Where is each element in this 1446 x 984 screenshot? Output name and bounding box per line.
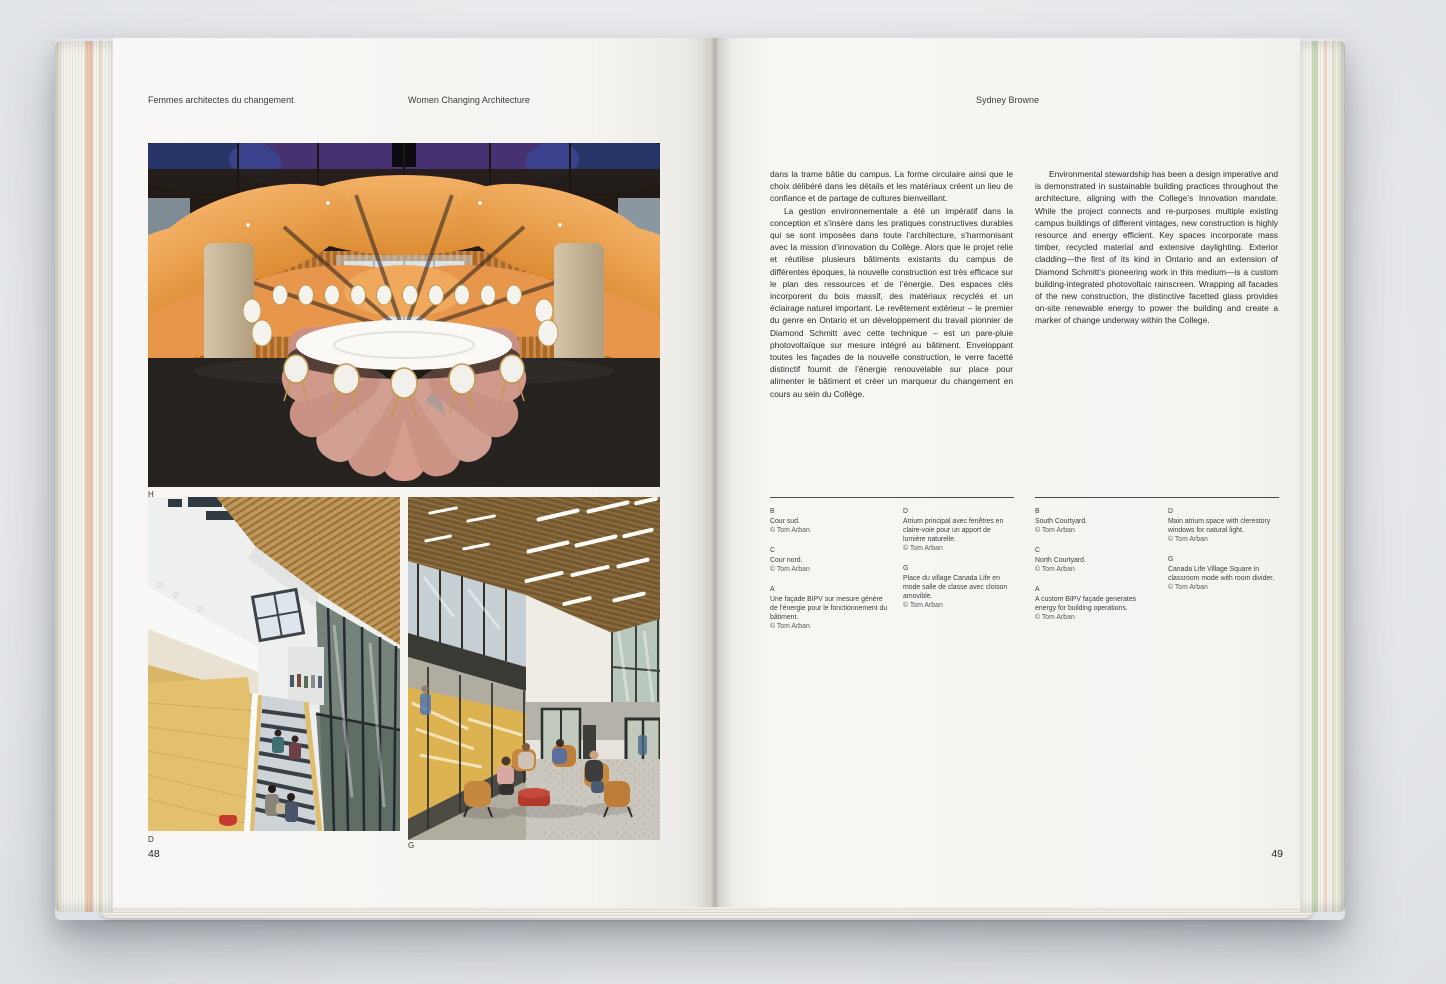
- page-edges-left: [55, 41, 113, 912]
- captions-english: B South Courtyard. © Tom Arban C North C…: [1035, 497, 1279, 633]
- paragraph-fr-2: La gestion environnementale a été un imp…: [770, 205, 1013, 400]
- photo-h-illustration: [148, 143, 660, 487]
- left-page: Femmes architectes du changement Women C…: [113, 38, 715, 907]
- page-edges-right: [1300, 41, 1345, 912]
- caption-en-d: D Main atrium space with clerestory wind…: [1168, 507, 1279, 544]
- paragraph-fr-1: dans la trame bâtie du campus. La forme …: [770, 168, 1013, 205]
- running-head-author: Sydney Browne: [715, 95, 1300, 105]
- page-number-right: 49: [1271, 848, 1283, 860]
- running-head-english: Women Changing Architecture: [408, 95, 530, 105]
- caption-fr-a: A Une façade BIPV sur mesure génère de l…: [770, 585, 903, 631]
- photo-h-roundtable-room: [148, 143, 660, 487]
- caption-en-c: C North Courtyard. © Tom Arban: [1035, 546, 1168, 574]
- caption-en-a: A A custom BIPV façade generates energy …: [1035, 585, 1168, 622]
- page-number-left: 48: [148, 848, 160, 860]
- photo-d-stairwell: [148, 497, 400, 831]
- captions-french-col1: B Cour sud. © Tom Arban C Cour nord. © T…: [770, 507, 903, 642]
- body-column-french: dans la trame bâtie du campus. La forme …: [770, 168, 1013, 400]
- photo-g-atrium-lounge: [408, 497, 660, 840]
- body-column-english: Environmental stewardship has been a des…: [1035, 168, 1278, 327]
- caption-fr-c: C Cour nord. © Tom Arban: [770, 546, 903, 574]
- open-book: Femmes architectes du changement Women C…: [55, 38, 1345, 920]
- captions-english-col1: B South Courtyard. © Tom Arban C North C…: [1035, 507, 1168, 633]
- photo-g-illustration: [408, 497, 660, 840]
- caption-en-b: B South Courtyard. © Tom Arban: [1035, 507, 1168, 535]
- captions-french: B Cour sud. © Tom Arban C Cour nord. © T…: [770, 497, 1014, 642]
- photo-d-illustration: [148, 497, 400, 831]
- caption-fr-b: B Cour sud. © Tom Arban: [770, 507, 903, 535]
- caption-en-g: G Canada Life Village Square in classroo…: [1168, 555, 1279, 592]
- caption-fr-d: D Atrium principal avec fenêtres en clai…: [903, 507, 1014, 553]
- right-page: Sydney Browne dans la trame bâtie du cam…: [715, 38, 1300, 907]
- book-spread-photograph: Femmes architectes du changement Women C…: [0, 0, 1446, 984]
- caption-fr-g: G Place du village Canada Life en mode s…: [903, 564, 1014, 610]
- captions-english-col2: D Main atrium space with clerestory wind…: [1168, 507, 1279, 633]
- captions-french-col2: D Atrium principal avec fenêtres en clai…: [903, 507, 1014, 642]
- paragraph-en-1: Environmental stewardship has been a des…: [1035, 168, 1278, 327]
- running-head-french: Femmes architectes du changement: [148, 95, 294, 105]
- photo-g-label: G: [408, 841, 414, 850]
- photo-d-label: D: [148, 835, 154, 844]
